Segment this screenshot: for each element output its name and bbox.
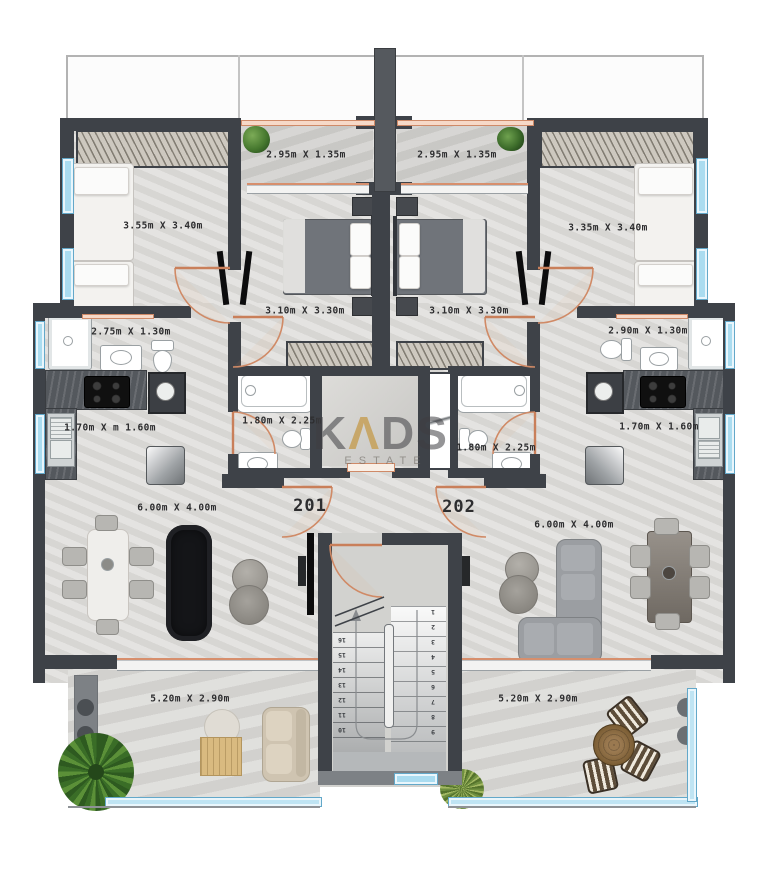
- stair-step-number: 14: [336, 666, 348, 674]
- stair-walk-line: [356, 610, 417, 739]
- dim-living-left: 6.00m X 4.00m: [137, 503, 217, 514]
- dim-balcony-bottom-right: 5.20m X 2.90m: [498, 694, 578, 705]
- dim-balcony-top-right: 2.95m X 1.35m: [417, 150, 497, 161]
- stair-step-number: 6: [427, 683, 439, 691]
- dim-bath-left: 2.75m X 1.30m: [91, 327, 171, 338]
- door-arcs-overlay: [0, 0, 768, 884]
- dim-living-right: 6.00m X 4.00m: [534, 520, 614, 531]
- dim-bedroom-mid-right: 3.10m X 3.30m: [429, 306, 509, 317]
- stair-step-number: 7: [427, 698, 439, 706]
- floor-plan: 1 2 3 4 5 6 7 8 9 16 15 14 13 12 11 10: [0, 0, 768, 884]
- door-arc: [233, 317, 283, 367]
- stair-step-number: 16: [336, 636, 348, 644]
- stair-step-number: 10: [336, 726, 348, 734]
- stair-step-number: 3: [427, 638, 439, 646]
- dim-bedroom-right: 3.35m X 3.40m: [568, 223, 648, 234]
- stair-step-number: 5: [427, 668, 439, 676]
- dim-bedroom-left: 3.55m X 3.40m: [123, 221, 203, 232]
- dim-balcony-bottom-left: 5.20m X 2.90m: [150, 694, 230, 705]
- dim-bedroom-mid-left: 3.10m X 3.30m: [265, 306, 345, 317]
- stair-step-number: 1: [427, 608, 439, 616]
- stair-step-number: 4: [427, 653, 439, 661]
- stair-step-number: 11: [336, 711, 348, 719]
- stair-step-number: 2: [427, 623, 439, 631]
- stair-step-number: 8: [427, 713, 439, 721]
- dim-bath-inner-left: 1.80m X 2.25m: [242, 416, 322, 427]
- door-arc: [175, 268, 230, 323]
- stair-step-number: 15: [336, 651, 348, 659]
- stair-step-number: 13: [336, 681, 348, 689]
- stair-break-line: [335, 607, 384, 626]
- stair-break-line: [335, 597, 384, 616]
- door-arc: [538, 268, 593, 323]
- unit-number-201: 201: [293, 496, 327, 516]
- dim-bath-right: 2.90m X 1.30m: [608, 326, 688, 337]
- dim-bath-inner-right: 1.80m X 2.25m: [456, 443, 536, 454]
- stair-step-number: 9: [427, 728, 439, 736]
- unit-number-202: 202: [442, 497, 476, 517]
- dim-balcony-top-left: 2.95m X 1.35m: [266, 150, 346, 161]
- stair-step-number: 12: [336, 696, 348, 704]
- dim-kitchen-left: 1.70m X m 1.60m: [64, 423, 156, 434]
- dim-kitchen-right: 1.70m X 1.60m: [619, 422, 699, 433]
- door-arc: [485, 317, 535, 367]
- door-arc: [330, 545, 382, 597]
